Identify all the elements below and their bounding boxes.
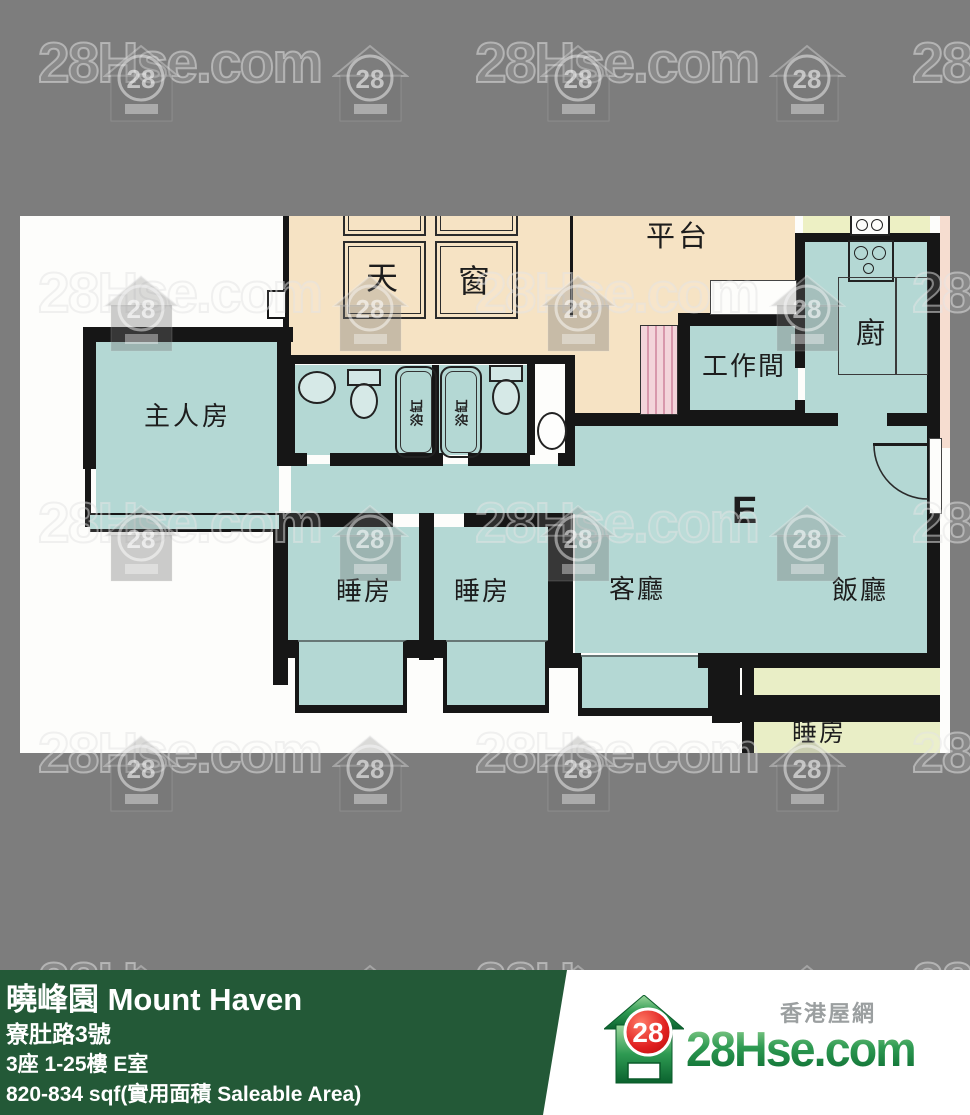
screenshot-root: 浴缸 浴缸 天 窗 平台 廚 工作間 主人房 睡房 睡房 客廳 飯廳 E 睡房 … [0,0,970,1115]
wall-segment [565,355,575,465]
skylight-square [343,216,426,236]
estate-unit-info: 3座 1-25樓 E室 [6,1048,148,1078]
logo-site-name: 28Hse.com [686,1022,915,1078]
wall-segment [83,327,96,469]
wall-segment [548,653,581,668]
wall-segment [464,513,548,527]
utility-room-label: 工作間 [702,353,786,379]
corridor-floor [291,464,577,514]
logo-badge-number: 28 [632,1017,663,1048]
toilet-bowl-icon [492,379,520,415]
wall-segment [548,513,573,655]
floor-plan: 浴缸 浴缸 天 窗 平台 廚 工作間 主人房 睡房 睡房 客廳 飯廳 E 睡房 [20,216,950,753]
stove-icon [848,240,894,282]
wall-segment [283,453,307,466]
bathtub-label: 浴缸 [451,398,470,426]
svg-text:28: 28 [127,64,156,94]
master-bedroom-floor [96,342,279,528]
wall-segment [887,413,930,426]
estate-address: 寮肚路3號 [6,1015,111,1049]
dining-room-label: 飯廳 [832,577,888,603]
watermark-house-icon: 28 [540,44,617,124]
watermark-house-icon: 28 [332,44,409,124]
logo-tagline: 香港屋網 [780,996,876,1028]
living-room-bay-window [578,655,712,716]
terrace-ledge [710,280,797,315]
neighbour-terrace-strip [940,216,950,448]
wall-segment [742,668,754,753]
wall-segment [717,653,940,668]
svg-text:28: 28 [356,64,385,94]
terrace-window-box [267,290,287,319]
wall-segment [558,453,575,466]
kitchen-label: 廚 [856,320,885,349]
svg-text:28: 28 [127,754,156,784]
svg-text:28: 28 [793,64,822,94]
logo-house-icon: 28 [604,995,684,1087]
bedroom1-label: 睡房 [336,578,392,604]
wall-segment [283,364,295,464]
watermark-text: 28Hse.com [912,30,970,96]
bathtub-icon: 浴缸 [395,366,437,458]
wall-segment [407,640,434,658]
bathtub-icon: 浴缸 [440,366,482,458]
svg-text:28: 28 [564,754,593,784]
svg-text:28: 28 [564,64,593,94]
watermark-text: 28Hse.com [38,30,321,96]
door-swing-arc [873,444,929,502]
wall-segment [273,640,298,658]
watermark-house-icon: 28 [103,44,180,124]
bedroom2-label: 睡房 [454,578,510,604]
adjacent-bedroom-floor [754,720,940,753]
wall-segment [570,216,573,317]
stove-icon [850,216,890,236]
skylight-label-b: 窗 [458,265,490,297]
living-room-label: 客廳 [609,576,665,602]
adjacent-unit-strip [742,668,940,697]
bathtub-label: 浴缸 [406,398,425,426]
master-window-wall [90,513,279,532]
svg-text:28: 28 [356,754,385,784]
watermark-house-icon: 28 [769,44,846,124]
master-bedroom-label: 主人房 [144,403,231,429]
basin-icon [537,412,567,450]
wall-segment [434,640,446,658]
louvre-door [640,325,678,415]
basin-icon [298,371,336,404]
adjacent-bedroom-label: 睡房 [792,721,846,746]
wall-segment [527,360,535,455]
watermark-text: 28Hse.com [475,30,758,96]
terrace-label: 平台 [646,223,710,252]
footer-bar: 曉峰園 Mount Haven 寮肚路3號 3座 1-25樓 E室 820-83… [0,970,970,1115]
skylight-label-a: 天 [366,262,398,294]
kitchen-counter [895,277,928,375]
wall-segment [83,327,293,342]
unit-letter: E [732,492,757,530]
estate-title: 曉峰園 Mount Haven [6,974,302,1019]
wall-segment [575,413,838,426]
bedroom2-bay-window [443,640,549,713]
svg-text:28: 28 [793,754,822,784]
wall-segment [287,513,393,527]
wall-segment [678,313,690,423]
wall-segment [273,513,288,685]
bedroom1-bay-window [295,640,407,713]
skylight-square [435,216,518,236]
wall-segment [419,513,434,660]
toilet-bowl-icon [350,383,378,419]
entrance-door-recess [929,438,942,514]
estate-area: 820-834 sqf(實用面積 Saleable Area) [6,1078,361,1108]
